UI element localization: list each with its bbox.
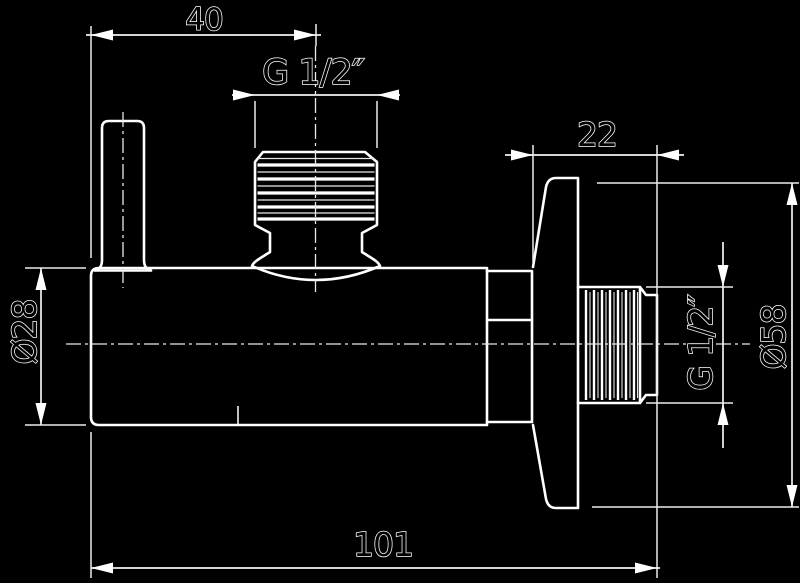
rosette-cone-outline [533, 178, 578, 508]
dim-o28-label: Ø28 [5, 300, 44, 365]
dim-101-label: 101 [353, 525, 413, 564]
dimension-body-diameter: Ø28 [5, 268, 86, 425]
dim-g12-top-label: G 1/2″ [262, 53, 365, 93]
dimension-outlet-thread: G 1/2″ [646, 242, 733, 448]
dimension-101: 101 [91, 525, 660, 574]
valve-outlet-nipple [487, 271, 532, 422]
dim-o58-label: Ø58 [754, 305, 793, 370]
angle-valve-drawing: 40 G 1/2″ 22 Ø28 Ø58 G 1/2″ 101 [0, 0, 800, 583]
technical-drawing-canvas: 40 G 1/2″ 22 Ø28 Ø58 G 1/2″ 101 [0, 0, 800, 583]
dim-g12-right-label: G 1/2″ [681, 295, 720, 391]
dim-40-extension-lines [91, 24, 316, 578]
valve-body-outline [91, 268, 487, 425]
valve-geometry [66, 46, 750, 508]
dim-40-label: 40 [185, 2, 222, 38]
dim-22-label: 22 [577, 115, 617, 154]
outlet-thread-stripes-thick [586, 290, 634, 400]
outlet-thread-stripes-thin [590, 292, 638, 398]
